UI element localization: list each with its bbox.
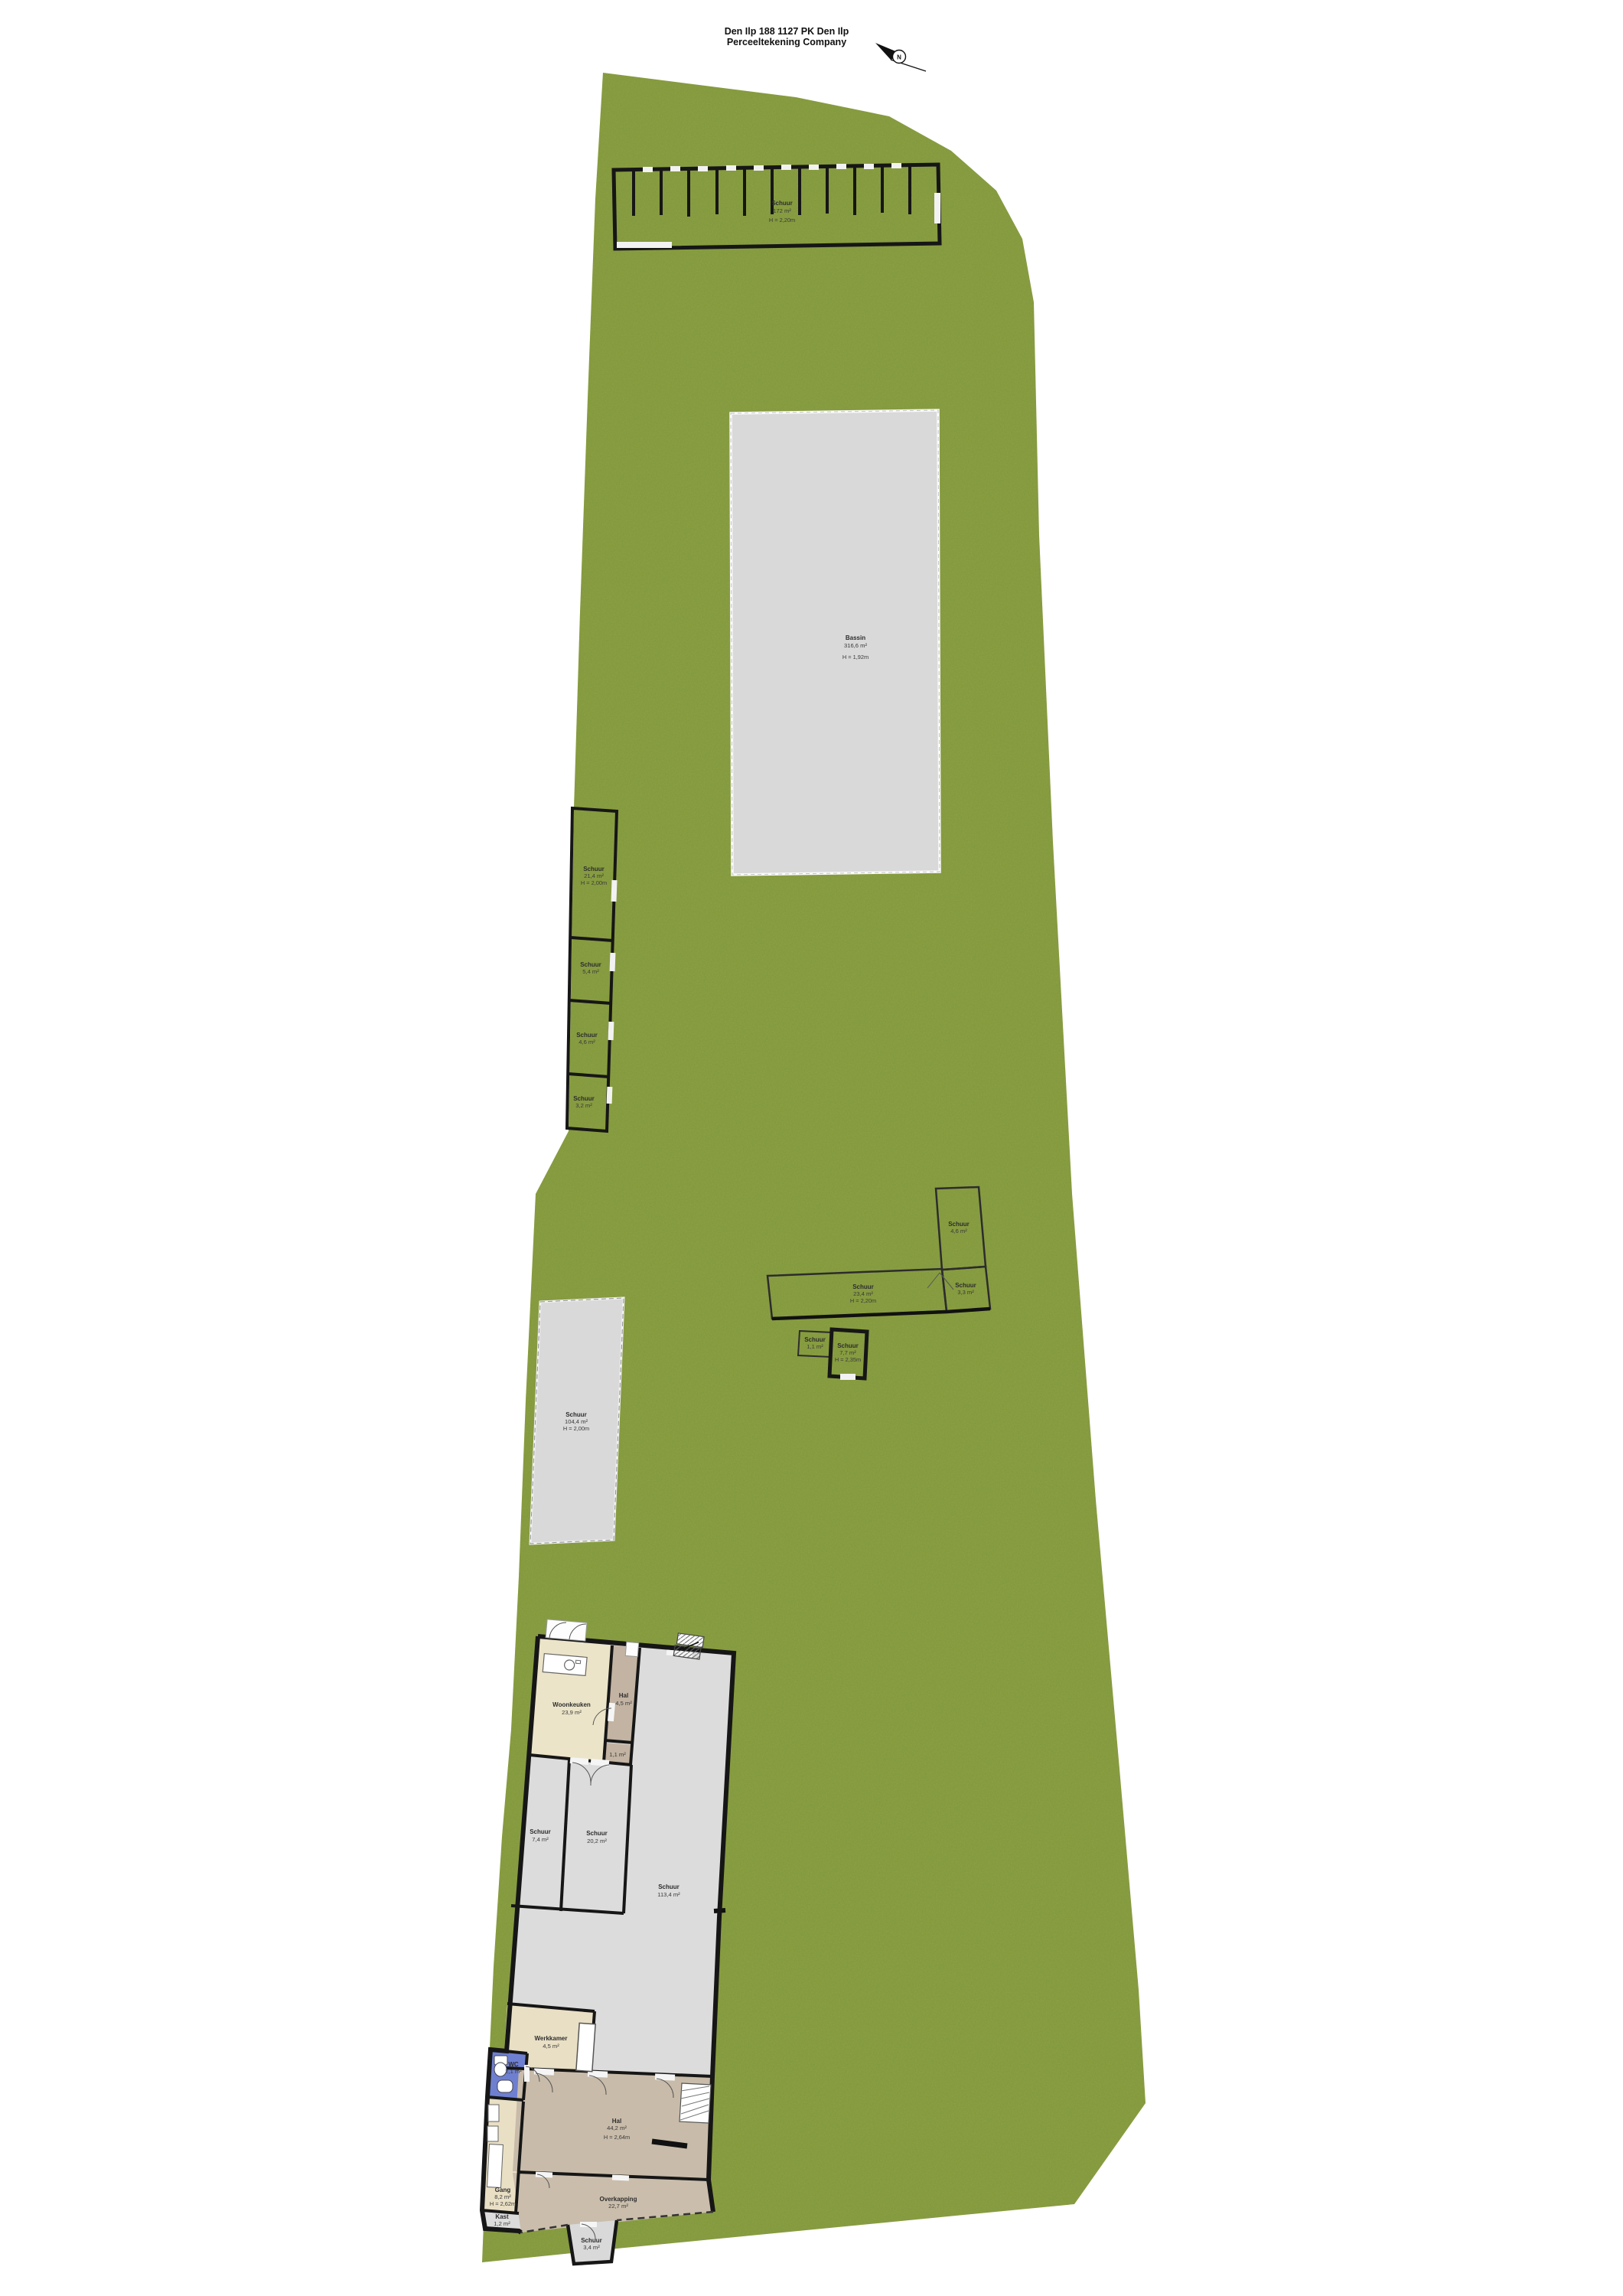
hal-main-name: Hal [612,2118,621,2125]
woonkeuken-name: Woonkeuken [552,1701,591,1708]
woonkeuken-area: 23,9 m² [562,1709,582,1716]
kast-name: Kast [495,2213,509,2220]
hut-small-area: 1,1 m² [807,1343,823,1350]
l-arm-height: H = 2,20m [850,1297,876,1304]
kast-area: 1,2 m² [494,2220,510,2227]
room-a-area: 21,4 m² [584,872,604,879]
overkapping-area: 22,7 m² [608,2203,628,2210]
building-basin: Bassin 316,6 m² H = 1,92m [731,410,940,875]
werkkamer-closet [576,2023,595,2071]
wc-area: 2,1 m² [505,2068,522,2075]
gang-name: Gang [495,2187,511,2193]
room-b-name: Schuur [580,961,601,968]
entree-name: Schuur [581,2237,602,2244]
room-d-area: 3,2 m² [575,1102,592,1109]
room-a-name: Schuur [583,866,605,872]
l-corner-area: 3,3 m² [957,1289,974,1296]
hut-area: 7,7 m² [839,1349,856,1356]
werkkamer-area: 4,5 m² [543,2043,559,2050]
hal-small-area: 1,1 m² [609,1751,626,1758]
schuur-big-name: Schuur [658,1883,680,1890]
l-arm-name: Schuur [852,1283,874,1290]
site-plan-canvas: Den Ilp 188 1127 PK Den Ilp Perceelteken… [0,0,1623,2296]
hut-door-gap [840,1374,855,1380]
hut-small-name: Schuur [804,1336,826,1343]
shed-top-area: 172 m² [773,207,791,214]
cabinet-icon [488,2105,499,2122]
schuur-big-area: 113,4 m² [657,1891,680,1898]
wc-name: WC [508,2061,519,2068]
building-shed-long: Schuur 104,4 m² H = 2,00m [530,1298,624,1544]
l-corner-name: Schuur [955,1282,976,1289]
staircase [680,2083,711,2123]
basin-height: H = 1,92m [842,654,869,660]
schuur-left-name: Schuur [530,1828,551,1835]
l-wing-name: Schuur [948,1221,970,1228]
cabinet-icon [487,2126,498,2141]
hal-main-area: 44,2 m² [607,2125,627,2131]
basin-outline [731,410,940,875]
room-a-height: H = 2,00m [581,879,607,886]
hal-top-name: Hal [619,1692,628,1699]
shed-top-height: H = 2,20m [769,217,795,223]
shed-long-area: 104,4 m² [565,1418,588,1425]
entree-area: 3,4 m² [583,2244,600,2251]
room-d-name: Schuur [573,1095,595,1102]
title-company: Perceeltekening Company [727,37,846,47]
hut-height: H = 2,35m [835,1356,861,1363]
room-b-area: 5,4 m² [582,968,599,975]
schuur-left-area: 7,4 m² [532,1836,549,1843]
title-address: Den Ilp 188 1127 PK Den Ilp [725,26,849,37]
gang-height: H = 2,62m [490,2200,516,2207]
basin-name: Bassin [846,634,865,641]
basin-area: 316,6 m² [844,642,867,649]
schuur-mid-name: Schuur [586,1830,608,1837]
shed-long-name: Schuur [565,1411,587,1418]
hal-main-height: H = 2,64m [604,2134,630,2141]
l-arm-area: 23,4 m² [853,1290,873,1297]
hut-name: Schuur [837,1342,859,1349]
site-plan-page: Den Ilp 188 1127 PK Den Ilp Perceelteken… [0,0,1623,2296]
overkapping-name: Overkapping [600,2196,637,2203]
outdoor-stairs [673,1633,704,1660]
washbasin-icon [497,2080,513,2092]
shed-long-height: H = 2,00m [563,1425,589,1432]
hal-top-area: 4,5 m² [615,1700,632,1707]
closet-icon [487,2144,504,2188]
schuur-mid-area: 20,2 m² [587,1838,607,1844]
kitchen-counter [543,1654,587,1676]
room-c-name: Schuur [576,1032,598,1039]
plan-title: Den Ilp 188 1127 PK Den Ilp Perceelteken… [725,26,849,47]
shed-top-name: Schuur [771,200,793,207]
compass-north-label: N [897,54,901,61]
l-wing-area: 4,6 m² [950,1228,967,1234]
werkkamer-name: Werkkamer [535,2035,568,2042]
room-c-area: 4,6 m² [578,1039,595,1045]
north-arrow-icon: N [875,43,926,71]
gang-area: 8,2 m² [494,2193,511,2200]
